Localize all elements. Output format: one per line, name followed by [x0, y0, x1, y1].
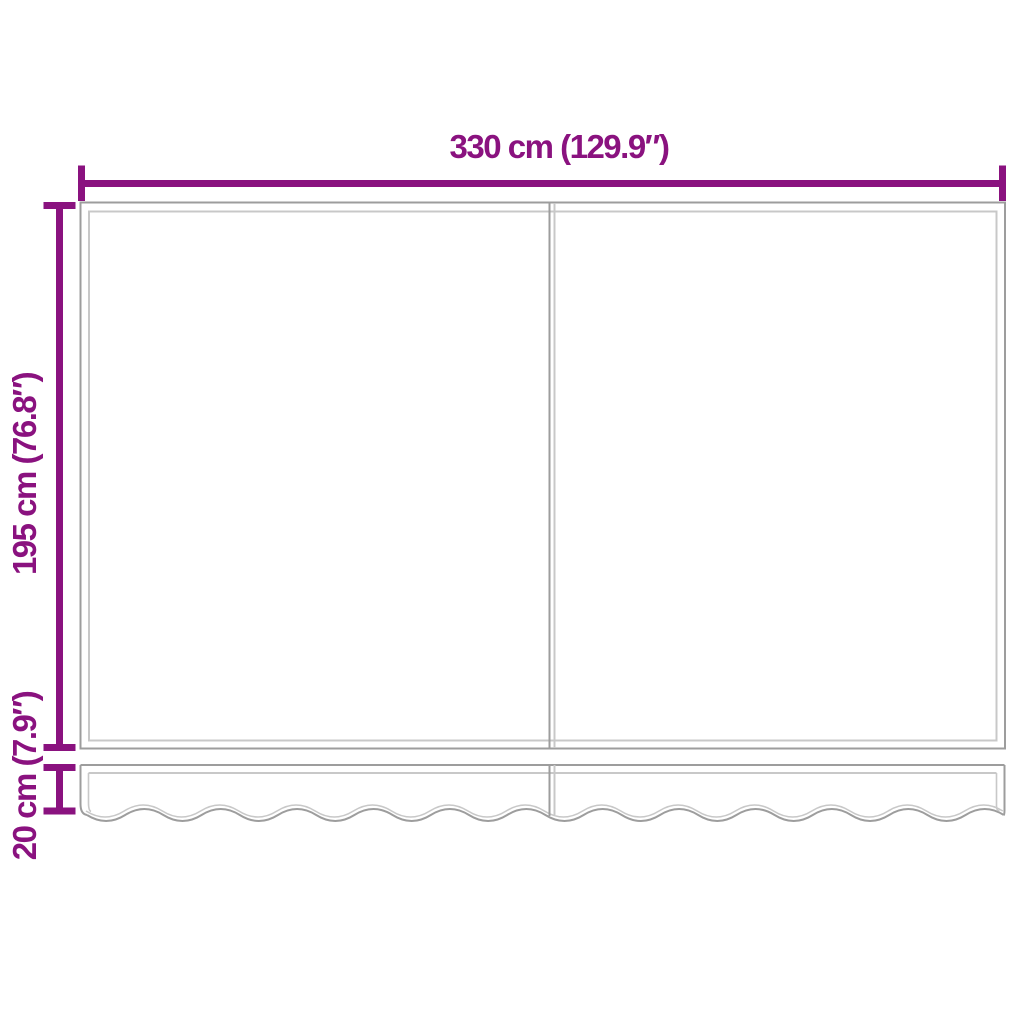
height-dimension-label: 195 cm (76.8″) — [6, 372, 43, 575]
valance-right-seam — [997, 773, 1000, 811]
awning-fabric-panel — [81, 203, 1006, 749]
fabric-panel-hem-seam — [89, 212, 997, 741]
valance-right-edge — [1004, 765, 1005, 815]
width-dimension-label: 330 cm (129.9″) — [450, 128, 669, 165]
height-dimension: 195 cm (76.8″) — [6, 206, 76, 748]
valance-height-dimension: 20 cm (7.9″) — [6, 691, 76, 860]
valance — [81, 765, 1005, 821]
valance-left-edge — [81, 765, 88, 815]
fabric-panel-outline — [81, 203, 1006, 749]
width-dimension: 330 cm (129.9″) — [82, 128, 1003, 201]
dimension-diagram: 330 cm (129.9″) 195 cm (76.8″) 20 cm (7.… — [0, 0, 1024, 1024]
valance-left-seam — [89, 773, 92, 812]
valance-dimension-label: 20 cm (7.9″) — [6, 691, 43, 860]
